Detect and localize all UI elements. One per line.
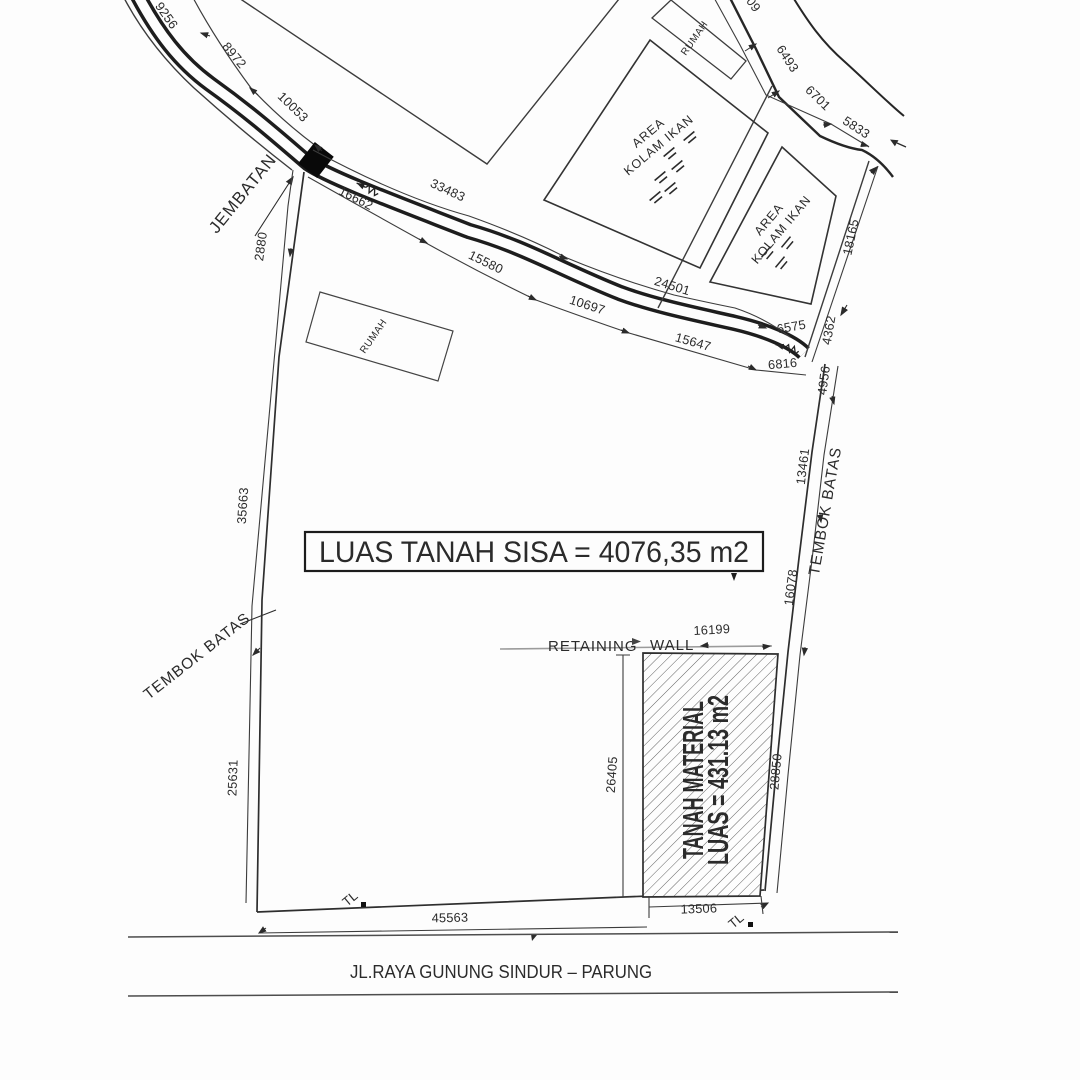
svg-text:26405: 26405 [603,756,621,794]
svg-text:16199: 16199 [693,621,730,638]
svg-text:45563: 45563 [431,910,468,926]
svg-text:LUAS = 431.13 m2: LUAS = 431.13 m2 [703,695,735,865]
svg-text:JL.RAYA GUNUNG SINDUR – PA: JL.RAYA GUNUNG SINDUR – PARUNG [350,962,652,982]
svg-text:13506: 13506 [680,900,717,916]
svg-text:6816: 6816 [767,355,797,372]
svg-text:RETAINING: RETAINING [548,638,638,655]
svg-text:35663: 35663 [234,487,252,525]
svg-text:25631: 25631 [224,759,240,796]
svg-text:LUAS TANAH SISA = 4076,35: LUAS TANAH SISA = 4076,35 m2 [319,536,749,569]
svg-text:WALL: WALL [650,637,694,654]
